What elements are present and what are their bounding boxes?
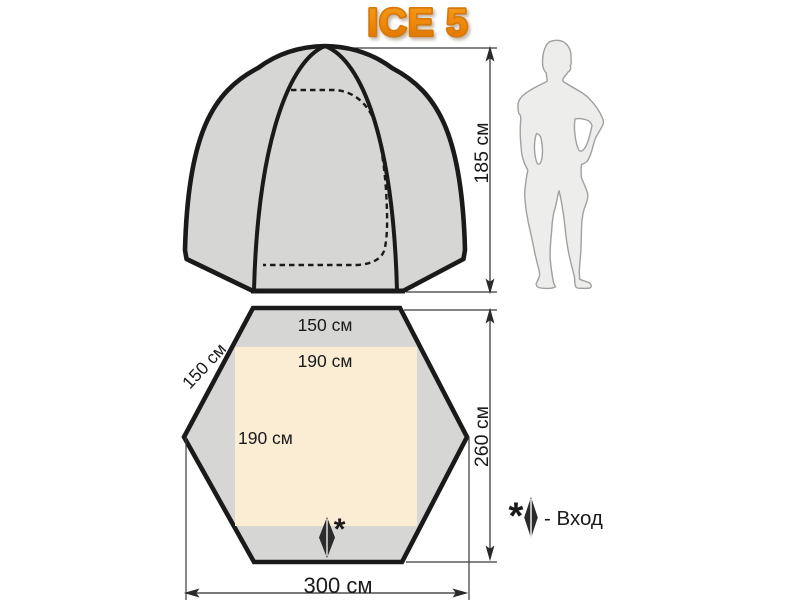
svg-text:190 см: 190 см [298, 351, 353, 371]
svg-text:ICE 5: ICE 5 [367, 2, 468, 45]
svg-text:*: * [509, 496, 524, 538]
svg-text:- Вход: - Вход [544, 507, 603, 530]
svg-text:300 см: 300 см [304, 573, 373, 598]
svg-text:260 см: 260 см [471, 406, 493, 467]
svg-text:185 см: 185 см [471, 122, 493, 183]
svg-text:150 см: 150 см [298, 315, 353, 335]
svg-text:190 см: 190 см [238, 428, 293, 448]
svg-text:*: * [334, 513, 346, 546]
